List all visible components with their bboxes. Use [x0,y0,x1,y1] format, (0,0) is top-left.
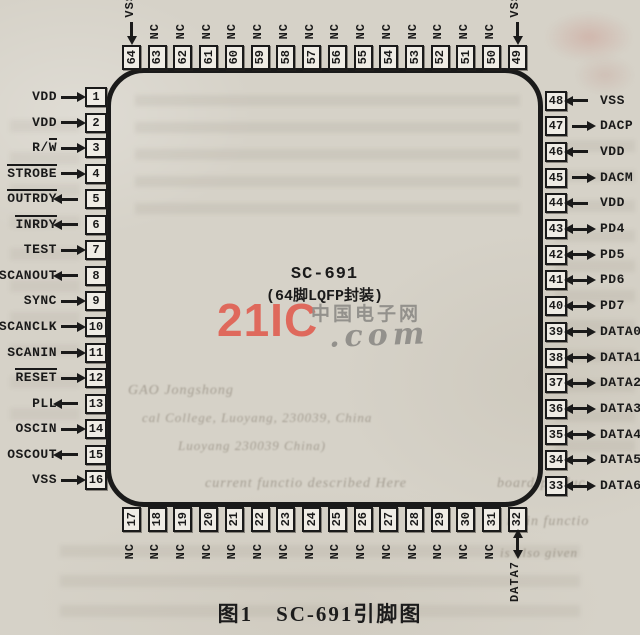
pin-22-box: 22 [251,507,270,532]
pin-label-text: NC [457,23,471,39]
pin-27-label: NC [380,543,398,559]
pin-label-text: DATA1 [600,350,640,365]
pin-3-box: 3 [85,138,107,158]
pin-32-label: DATA7 [508,561,526,602]
pin-2-box: 2 [85,113,107,133]
pin-4-label: STROBE [7,165,57,183]
pin-61-label: NC [200,23,218,39]
pin-label-text: NC [354,543,368,559]
pin-30-label: NC [457,543,475,559]
pin-58-number: 58 [279,50,293,64]
pin-31-label: NC [483,543,501,559]
pin-12-box: 12 [85,368,107,388]
pin-21-label: NC [225,543,243,559]
pin-15-label: OSCOUT [7,446,57,464]
pin-50-label: NC [483,23,501,39]
pin-1-arrow-in [61,96,78,99]
pin-20-box: 20 [199,507,218,532]
pin-49-box: 49 [508,45,527,70]
pin-6-label: INRDY [15,216,57,234]
pin-43-number: 43 [549,222,563,236]
pin-10-label: SCANCLK [0,318,57,336]
pin-22-number: 22 [253,512,267,526]
pin-28-number: 28 [408,512,422,526]
pin-23-box: 23 [276,507,295,532]
pin-17-label: NC [123,543,141,559]
pin-19-label: NC [174,543,192,559]
pin-2-arrow-in [61,121,78,124]
pin-label-text: NC [148,543,162,559]
pin-label-text: NC [225,23,239,39]
pin-54-label: NC [380,23,398,39]
pin-48-number: 48 [549,94,563,108]
pin-35-label: DATA4 [600,426,640,444]
pin-layer: 1VDD2VDD3R/W4STROBE5OUTRDY6INRDY7TEST8SC… [0,0,640,635]
pin-label-text: NC [328,543,342,559]
pin-16-box: 16 [85,470,107,490]
pin-28-box: 28 [405,507,424,532]
pin-35-number: 35 [549,428,563,442]
pin-40-label: PD7 [600,297,625,315]
pin-label-text: INRDY [15,215,57,232]
pin-12-number: 12 [89,371,103,385]
pin-45-box: 45 [545,168,567,188]
pin-29-label: NC [431,543,449,559]
pin-52-box: 52 [431,45,450,70]
pin-20-number: 20 [202,512,216,526]
pin-label-text: DATA0 [600,324,640,339]
pin-4-number: 4 [92,167,99,181]
pin-25-box: 25 [328,507,347,532]
pin-31-number: 31 [485,512,499,526]
pin-57-box: 57 [302,45,321,70]
pin-label-text: NC [123,543,137,559]
pin-49-number: 49 [510,50,524,64]
pin-33-label: DATA6 [600,477,640,495]
pin-60-box: 60 [225,45,244,70]
pin-36-label: DATA3 [600,400,640,418]
pin-26-label: NC [354,543,372,559]
pin-44-arrow-in [572,202,588,205]
pin-11-number: 11 [89,346,103,360]
pin-label-text: VDD [600,195,625,210]
pin-15-arrow-out [61,453,78,456]
pin-3-label: R/W [32,139,57,157]
pin-label-text: NC [148,23,162,39]
pin-27-box: 27 [379,507,398,532]
pin-18-label: NC [148,543,166,559]
pin-27-number: 27 [382,512,396,526]
pin-45-label: DACM [600,169,633,187]
pin-41-arrow-bi [572,279,588,282]
pin-6-box: 6 [85,215,107,235]
pin-24-box: 24 [302,507,321,532]
pin-31-box: 31 [482,507,501,532]
pin-38-arrow-bi [572,356,588,359]
pin-14-arrow-in [61,428,78,431]
pin-38-label: DATA1 [600,349,640,367]
pin-52-label: NC [431,23,449,39]
pin-60-label: NC [225,23,243,39]
pin-5-number: 5 [92,192,99,206]
pin-label-text: NC [457,543,471,559]
pin-12-arrow-in [61,377,78,380]
pin-60-number: 60 [227,50,241,64]
pin-17-box: 17 [122,507,141,532]
pin-29-box: 29 [431,507,450,532]
pin-21-box: 21 [225,507,244,532]
pin-label-text: PD6 [600,272,625,287]
figure-caption: 图1 SC-691引脚图 [0,598,640,628]
pin-label-text: NC [431,543,445,559]
pin-label-text: DATA7 [508,561,522,602]
pin-34-label: DATA5 [600,451,640,469]
pin-59-box: 59 [251,45,270,70]
pin-label-text: NC [200,23,214,39]
pin-14-number: 14 [89,422,103,436]
pin-41-number: 41 [549,273,563,287]
pin-label-text: VDD [32,89,57,104]
pin-28-label: NC [406,543,424,559]
pin-11-box: 11 [85,343,107,363]
pin-37-label: DATA2 [600,374,640,392]
pin-47-arrow-out [572,125,588,128]
pin-label-text: VSS [600,93,625,108]
pin-64-label: VSS [123,0,141,18]
pin-51-number: 51 [459,50,473,64]
pin-41-label: PD6 [600,271,625,289]
pin-9-arrow-in [61,300,78,303]
pin-34-number: 34 [549,453,563,467]
pin-6-arrow-out [61,223,78,226]
pin-label-text: DACP [600,118,633,133]
pin-label-text: NC [277,543,291,559]
pin-4-arrow-in [61,172,78,175]
pin-26-box: 26 [354,507,373,532]
pin-18-number: 18 [150,512,164,526]
pin-7-box: 7 [85,240,107,260]
pin-51-label: NC [457,23,475,39]
pin-47-label: DACP [600,117,633,135]
pin-label-text: DATA3 [600,401,640,416]
pin-7-arrow-in [61,249,78,252]
pin-57-label: NC [303,23,321,39]
pin-4-box: 4 [85,164,107,184]
pin-9-number: 9 [92,294,99,308]
pin-label-text: R/ [32,140,49,155]
pin-48-label: VSS [600,92,625,110]
pin-61-box: 61 [199,45,218,70]
pin-38-number: 38 [549,351,563,365]
pin-16-label: VSS [32,471,57,489]
pin-13-arrow-out [61,402,78,405]
pin-8-arrow-out [61,274,78,277]
pin-25-label: NC [328,543,346,559]
pin-50-number: 50 [485,50,499,64]
pin-label-text: RESET [15,368,57,385]
pin-18-box: 18 [148,507,167,532]
pin-label-text: PD5 [600,247,625,262]
pin-label-text: SCANIN [7,345,57,360]
pin-50-box: 50 [482,45,501,70]
pin-label-text: VSS [508,0,522,18]
pin-label-text: VDD [32,115,57,130]
pin-37-number: 37 [549,376,563,390]
pin-7-number: 7 [92,243,99,257]
pin-label-text: NC [483,543,497,559]
pin-10-box: 10 [85,317,107,337]
pin-16-number: 16 [89,473,103,487]
pin-5-label: OUTRDY [7,190,57,208]
pin-10-number: 10 [89,320,103,334]
pin-56-box: 56 [328,45,347,70]
pin-62-number: 62 [176,50,190,64]
pin-46-number: 46 [549,145,563,159]
pin-8-box: 8 [85,266,107,286]
pin-10-arrow-in [61,325,78,328]
pin-17-number: 17 [125,512,139,526]
pin-1-box: 1 [85,87,107,107]
pin-9-box: 9 [85,291,107,311]
pin-8-label: SCANOUT [0,267,57,285]
pin-64-arrow-in [130,22,133,37]
pin-label-text: NC [431,23,445,39]
pin-55-box: 55 [354,45,373,70]
pin-47-box: 47 [545,116,567,136]
pin-58-label: NC [277,23,295,39]
pin-63-label: NC [148,23,166,39]
pin-45-number: 45 [549,171,563,185]
pin-label-text: NC [174,23,188,39]
pin-30-box: 30 [456,507,475,532]
pin-36-arrow-bi [572,407,588,410]
pin-label-text: DACM [600,170,633,185]
pin-25-number: 25 [330,512,344,526]
pin-label-text: OUTRDY [7,189,57,206]
pin-58-box: 58 [276,45,295,70]
pin-33-arrow-bi [572,485,588,488]
pin-5-arrow-out [61,198,78,201]
pin-2-label: VDD [32,114,57,132]
pin-43-arrow-bi [572,228,588,231]
pin-56-label: NC [328,23,346,39]
pin-33-number: 33 [549,479,563,493]
pin-label-text: NC [483,23,497,39]
pin-label-text: NC [303,23,317,39]
pin-label-text: VSS [32,472,57,487]
pin-15-number: 15 [89,448,103,462]
pin-label-text: SCANCLK [0,319,57,334]
pin-53-number: 53 [408,50,422,64]
pin-label-text: OSCOUT [7,447,57,462]
scanned-page: GAO Jongshongcal College, Luoyang, 23003… [0,0,640,635]
pin-11-arrow-in [61,351,78,354]
pin-53-box: 53 [405,45,424,70]
pin-42-label: PD5 [600,246,625,264]
pin-57-number: 57 [305,50,319,64]
pin-44-number: 44 [549,196,563,210]
pin-label-text: W [49,138,57,155]
pin-23-number: 23 [279,512,293,526]
pin-64-box: 64 [122,45,141,70]
pin-3-arrow-in [61,147,78,150]
pin-63-box: 63 [148,45,167,70]
pin-42-arrow-bi [572,253,588,256]
pin-12-label: RESET [15,369,57,387]
pin-40-arrow-bi [572,305,588,308]
pin-label-text: NC [354,23,368,39]
pin-19-box: 19 [173,507,192,532]
pin-42-number: 42 [549,248,563,262]
pin-label-text: NC [328,23,342,39]
pin-32-arrow-bi [516,537,519,551]
pin-47-number: 47 [549,119,563,133]
pin-43-label: PD4 [600,220,625,238]
pin-37-arrow-bi [572,382,588,385]
pin-label-text: NC [251,543,265,559]
pin-label-text: NC [380,543,394,559]
pin-45-arrow-out [572,176,588,179]
pin-55-number: 55 [356,50,370,64]
pin-19-number: 19 [176,512,190,526]
pin-label-text: NC [200,543,214,559]
pin-62-label: NC [174,23,192,39]
pin-label-text: NC [277,23,291,39]
pin-24-label: NC [303,543,321,559]
pin-26-number: 26 [356,512,370,526]
pin-56-number: 56 [330,50,344,64]
pin-39-arrow-bi [572,330,588,333]
pin-label-text: PD7 [600,298,625,313]
pin-22-label: NC [251,543,269,559]
pin-54-number: 54 [382,50,396,64]
pin-14-label: OSCIN [15,420,57,438]
pin-label-text: NC [174,543,188,559]
pin-8-number: 8 [92,269,99,283]
pin-3-number: 3 [92,141,99,155]
pin-49-arrow-in [516,22,519,37]
pin-59-label: NC [251,23,269,39]
pin-11-label: SCANIN [7,344,57,362]
pin-53-label: NC [406,23,424,39]
pin-52-number: 52 [433,50,447,64]
pin-label-text: NC [251,23,265,39]
pin-20-label: NC [200,543,218,559]
pin-label-text: NC [406,23,420,39]
pin-21-number: 21 [227,512,241,526]
pin-61-number: 61 [202,50,216,64]
pin-label-text: SYNC [24,293,57,308]
pin-label-text: DATA4 [600,427,640,442]
pin-16-arrow-in [61,479,78,482]
pin-label-text: OSCIN [15,421,57,436]
pin-15-box: 15 [85,445,107,465]
pin-13-box: 13 [85,394,107,414]
pin-40-number: 40 [549,299,563,313]
pin-7-label: TEST [24,241,57,259]
pin-label-text: STROBE [7,164,57,181]
pin-6-number: 6 [92,218,99,232]
pin-13-number: 13 [89,397,103,411]
pin-label-text: VDD [600,144,625,159]
pin-24-number: 24 [305,512,319,526]
pin-label-text: NC [225,543,239,559]
pin-14-box: 14 [85,419,107,439]
pin-label-text: DATA5 [600,452,640,467]
pin-label-text: VSS [123,0,137,18]
pin-5-box: 5 [85,189,107,209]
pin-63-number: 63 [150,50,164,64]
pin-46-label: VDD [600,143,625,161]
pin-46-arrow-in [572,150,588,153]
pin-35-arrow-bi [572,433,588,436]
pin-label-text: DATA2 [600,375,640,390]
pin-49-label: VSS [508,0,526,18]
pin-54-box: 54 [379,45,398,70]
pin-23-label: NC [277,543,295,559]
pin-64-number: 64 [125,50,139,64]
pin-48-arrow-in [572,99,588,102]
pin-30-number: 30 [459,512,473,526]
pin-label-text: TEST [24,242,57,257]
pin-1-number: 1 [92,90,99,104]
pin-label-text: SCANOUT [0,268,57,283]
pin-label-text: DATA6 [600,478,640,493]
pin-34-arrow-bi [572,459,588,462]
pin-label-text: NC [406,543,420,559]
pin-51-box: 51 [456,45,475,70]
pin-55-label: NC [354,23,372,39]
pin-label-text: NC [303,543,317,559]
pin-36-number: 36 [549,402,563,416]
pin-44-label: VDD [600,194,625,212]
pin-2-number: 2 [92,116,99,130]
pin-1-label: VDD [32,88,57,106]
pin-29-number: 29 [433,512,447,526]
pin-9-label: SYNC [24,292,57,310]
pin-59-number: 59 [253,50,267,64]
pin-39-number: 39 [549,325,563,339]
pin-label-text: NC [380,23,394,39]
pin-32-number: 32 [510,512,524,526]
pin-label-text: PD4 [600,221,625,236]
pin-39-label: DATA0 [600,323,640,341]
pin-62-box: 62 [173,45,192,70]
